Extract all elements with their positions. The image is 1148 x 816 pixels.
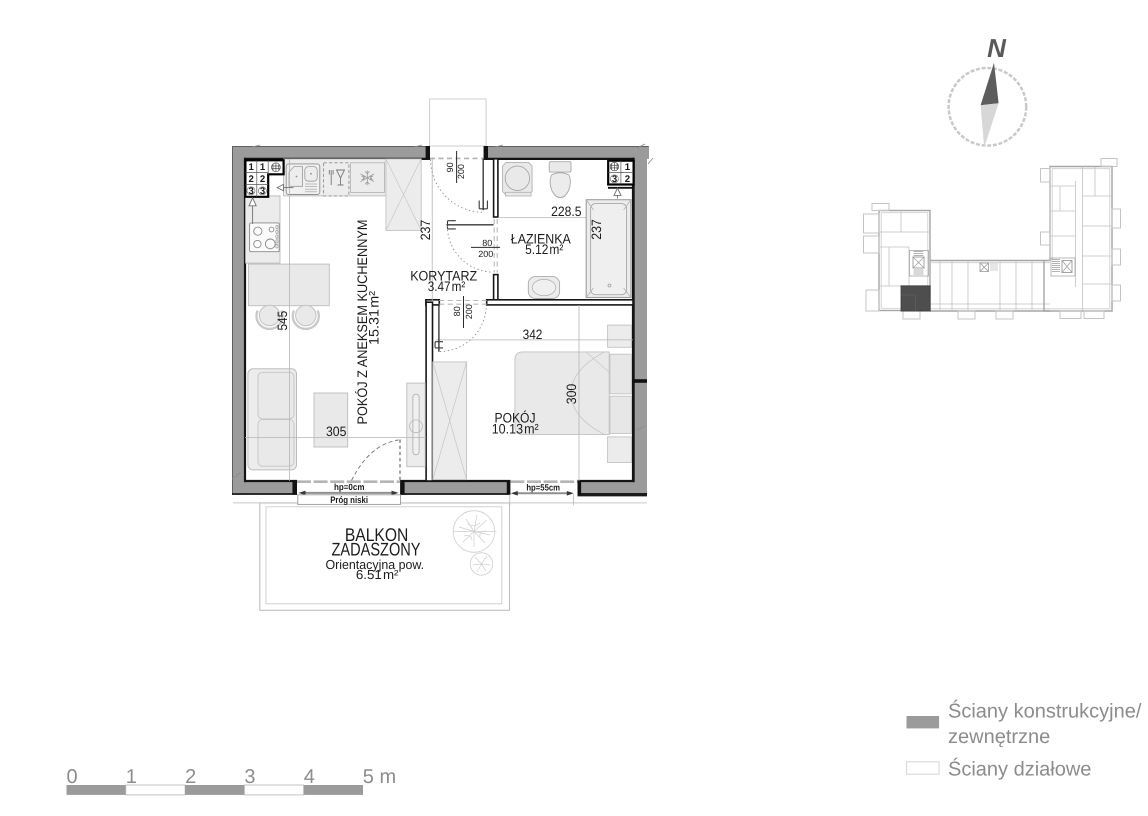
svg-text:1: 1: [260, 162, 266, 173]
svg-text:545: 545: [275, 311, 290, 331]
svg-text:90: 90: [445, 162, 455, 172]
svg-text:15.31 m²: 15.31 m²: [367, 291, 382, 345]
svg-text:200: 200: [478, 249, 493, 259]
svg-text:3.47 m²: 3.47 m²: [428, 279, 466, 294]
svg-text:300: 300: [564, 383, 579, 404]
svg-text:1: 1: [625, 162, 631, 173]
svg-text:2: 2: [625, 174, 630, 185]
svg-text:5 m: 5 m: [363, 766, 396, 788]
svg-text:80: 80: [452, 306, 462, 316]
svg-text:228.5: 228.5: [551, 204, 581, 219]
svg-text:200: 200: [464, 304, 474, 319]
svg-text:80: 80: [482, 238, 492, 248]
svg-text:Próg niski: Próg niski: [330, 494, 368, 505]
svg-text:1: 1: [126, 766, 137, 788]
svg-text:2: 2: [260, 174, 265, 185]
svg-text:237: 237: [418, 220, 433, 241]
svg-text:N: N: [987, 33, 1007, 63]
svg-text:5.12 m²: 5.12 m²: [525, 242, 564, 257]
svg-text:0: 0: [67, 766, 78, 788]
svg-text:6.51 m²: 6.51 m²: [356, 567, 399, 582]
svg-text:305: 305: [326, 424, 346, 439]
svg-text:2: 2: [249, 174, 254, 185]
svg-text:342: 342: [523, 327, 543, 342]
svg-text:Ściany konstrukcyjne/: Ściany konstrukcyjne/: [948, 700, 1142, 723]
svg-text:3: 3: [249, 186, 254, 197]
svg-text:10.13 m²: 10.13 m²: [492, 421, 539, 436]
svg-text:hp=0cm: hp=0cm: [334, 482, 365, 492]
svg-text:200: 200: [456, 164, 466, 179]
svg-text:3: 3: [244, 766, 255, 788]
svg-text:1: 1: [249, 162, 255, 173]
svg-text:3: 3: [612, 174, 617, 185]
svg-text:hp=55cm: hp=55cm: [526, 483, 560, 493]
svg-text:2: 2: [185, 766, 196, 788]
svg-text:3: 3: [260, 186, 265, 197]
svg-text:zewnętrzne: zewnętrzne: [948, 726, 1050, 748]
svg-text:237: 237: [589, 219, 604, 240]
svg-text:Ściany działowe: Ściany działowe: [948, 758, 1091, 781]
svg-text:4: 4: [304, 766, 315, 788]
